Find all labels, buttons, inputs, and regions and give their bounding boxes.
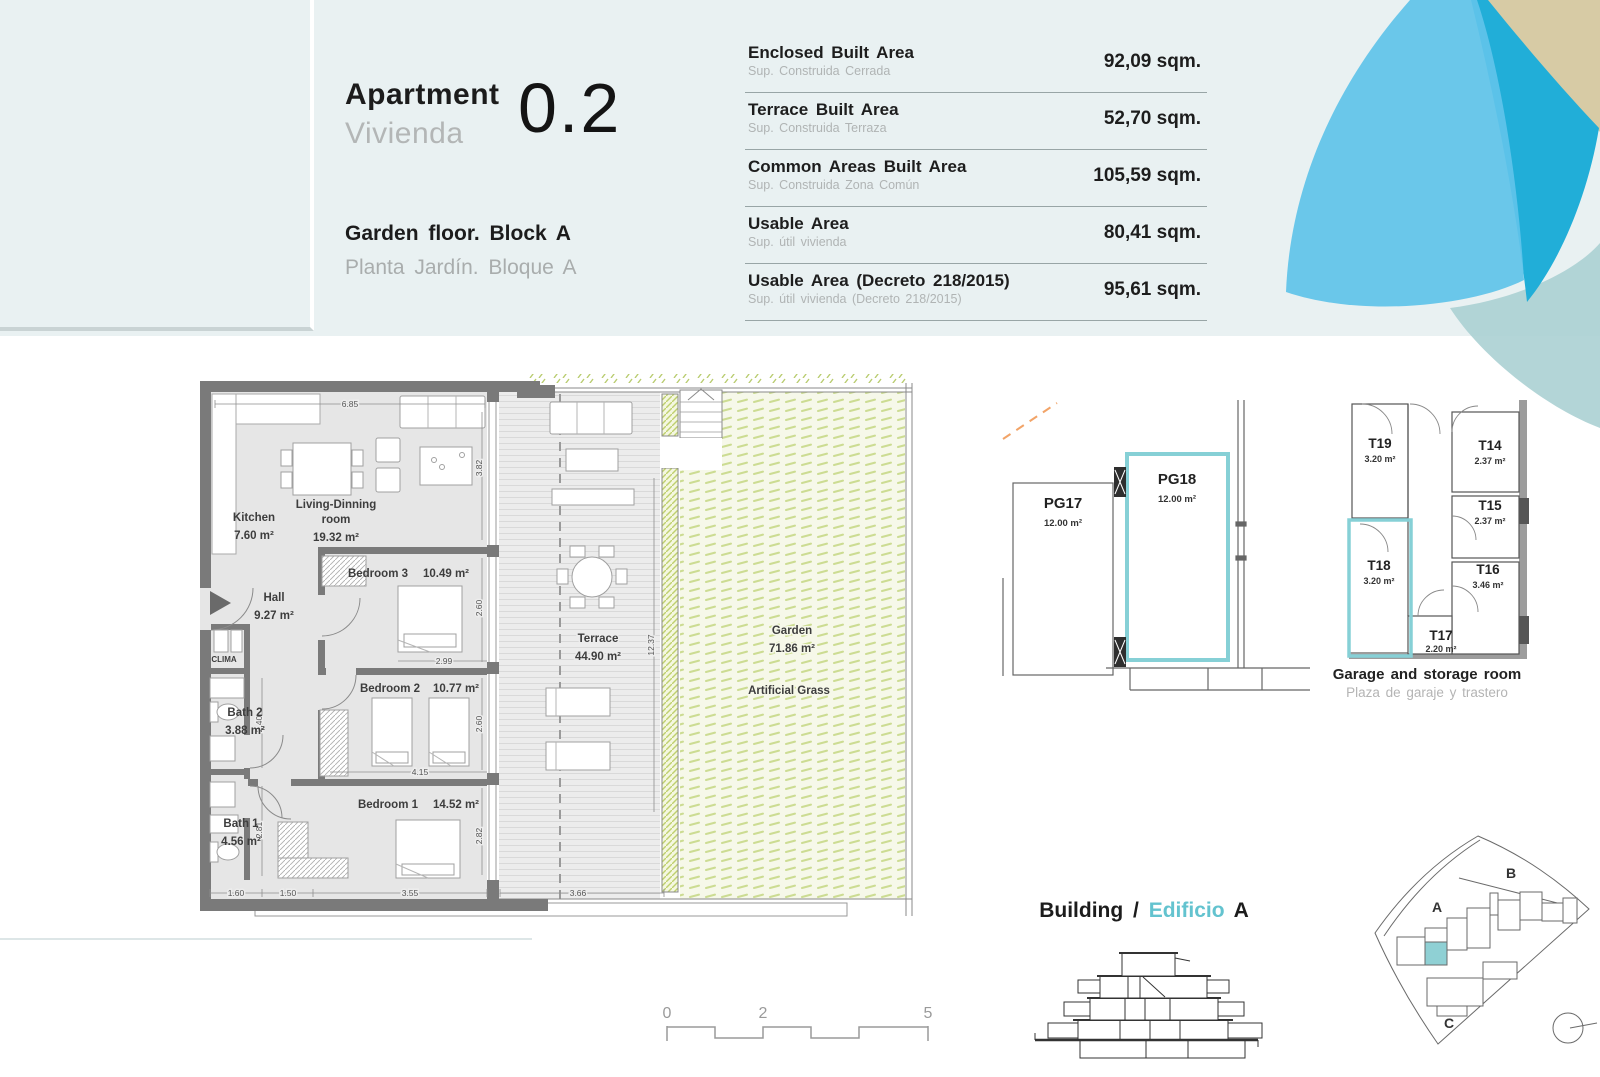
t14-label: T14 bbox=[1478, 438, 1502, 453]
row-label-es: Sup. útil vivienda bbox=[748, 235, 847, 249]
t18-area: 3.20 m² bbox=[1363, 576, 1394, 586]
bath1-label: Bath 1 bbox=[223, 818, 259, 830]
bath2-area: 3.88 m² bbox=[225, 725, 265, 737]
row-label-en: Enclosed Built Area bbox=[748, 43, 914, 63]
row-label-en: Usable Area (Decreto 218/2015) bbox=[748, 271, 1010, 291]
t18-highlight-box bbox=[1349, 520, 1411, 656]
building-label-es: Edificio bbox=[1149, 899, 1225, 922]
building-block: A bbox=[1234, 899, 1249, 922]
pg18-area: 12.00 m² bbox=[1158, 494, 1196, 505]
petal-light-blue bbox=[1286, 0, 1524, 307]
footer-divider bbox=[0, 938, 532, 940]
site-block-a-label: A bbox=[1432, 899, 1442, 915]
t17-label: T17 bbox=[1429, 628, 1452, 643]
scale-tick-0: 0 bbox=[663, 1005, 672, 1022]
pg18-label: PG18 bbox=[1158, 471, 1196, 488]
floor-label-es: Planta Jardín. Bloque A bbox=[345, 256, 577, 280]
building-elevation bbox=[1015, 940, 1270, 1075]
artificial-grass-label: Artificial Grass bbox=[748, 685, 830, 697]
t18-label: T18 bbox=[1367, 558, 1391, 573]
floor-label-en: Garden floor. Block A bbox=[345, 222, 571, 246]
garden-label: Garden bbox=[772, 625, 812, 637]
dim-bed2-h: 2.60 bbox=[474, 715, 484, 732]
site-plan: A B C bbox=[1345, 815, 1600, 1070]
scale-tick-2: 2 bbox=[759, 1005, 768, 1022]
t19-label: T19 bbox=[1368, 436, 1391, 451]
dim-bed1-w: 3.55 bbox=[402, 888, 419, 898]
apartment-label-en: Apartment bbox=[345, 78, 500, 112]
table-row: Enclosed Built Area Sup. Construida Cerr… bbox=[745, 36, 1207, 93]
row-label-en: Common Areas Built Area bbox=[748, 157, 966, 177]
dim-terrace-h: 12.37 bbox=[646, 634, 656, 656]
bedroom1-label: Bedroom 1 bbox=[358, 799, 419, 811]
photo-placeholder bbox=[0, 0, 314, 331]
dim-terrace-w: 3.66 bbox=[570, 888, 587, 898]
scale-bar-line bbox=[667, 1026, 928, 1041]
dim-bed2-w: 4.15 bbox=[412, 767, 429, 777]
dim-bottom2: 1.50 bbox=[280, 888, 297, 898]
pg17-label: PG17 bbox=[1044, 495, 1082, 512]
elevation-drawing bbox=[1035, 953, 1262, 1058]
logo-petals-decoration bbox=[1180, 0, 1600, 430]
row-label-en: Usable Area bbox=[748, 214, 849, 234]
kitchen-area: 7.60 m² bbox=[234, 530, 274, 542]
building-label: Building / Edificio A bbox=[1024, 899, 1264, 923]
garden-area: 71.86 m² bbox=[769, 643, 815, 655]
brochure-page: Apartment Vivienda 0.2 Garden floor. Blo… bbox=[0, 0, 1600, 1077]
table-row: Common Areas Built Area Sup. Construida … bbox=[745, 150, 1207, 207]
garage-caption: Garage and storage room Plaza de garaje … bbox=[1318, 666, 1536, 700]
terrace-label: Terrace bbox=[578, 633, 619, 645]
site-block-c-label: C bbox=[1444, 1015, 1454, 1031]
t15-label: T15 bbox=[1478, 498, 1502, 513]
row-label-es: Sup. útil vivienda (Decreto 218/2015) bbox=[748, 292, 962, 306]
dim-living-h: 3.82 bbox=[474, 459, 484, 476]
garage-caption-en: Garage and storage room bbox=[1318, 666, 1536, 683]
row-value: 105,59 sqm. bbox=[1093, 165, 1201, 187]
site-buildings bbox=[1397, 892, 1577, 1016]
bedroom3-label: Bedroom 3 bbox=[348, 568, 408, 580]
bedroom3-area: 10.49 m² bbox=[423, 568, 469, 580]
row-label-es: Sup. Construida Terraza bbox=[748, 121, 887, 135]
row-value: 92,09 sqm. bbox=[1104, 51, 1201, 73]
bath2-label: Bath 2 bbox=[227, 707, 262, 719]
t16-area: 3.46 m² bbox=[1472, 580, 1503, 590]
apartment-label-es: Vivienda bbox=[345, 117, 464, 151]
orange-dashed-line bbox=[1003, 403, 1057, 439]
t16-label: T16 bbox=[1476, 562, 1500, 577]
terrace-area: 44.90 m² bbox=[575, 651, 621, 663]
living-area: 19.32 m² bbox=[313, 532, 359, 544]
hall-label: Hall bbox=[263, 592, 284, 604]
dim-bottom1: 1.60 bbox=[228, 888, 245, 898]
bath1-area: 4.56 m² bbox=[221, 836, 261, 848]
living-label2: room bbox=[322, 514, 351, 526]
area-table: Enclosed Built Area Sup. Construida Cerr… bbox=[745, 36, 1207, 321]
row-value: 52,70 sqm. bbox=[1104, 108, 1201, 130]
garage-columns bbox=[1114, 467, 1126, 667]
t15-area: 2.37 m² bbox=[1474, 516, 1505, 526]
compass-icon bbox=[1553, 1013, 1597, 1043]
dim-top: 6.85 bbox=[342, 399, 359, 409]
apartment-floorplan: 6.85 3.82 2.60 2.99 2.60 4.15 2.82 3.55 … bbox=[180, 365, 940, 930]
site-highlighted-unit bbox=[1425, 942, 1447, 965]
dim-bed3-h: 2.60 bbox=[474, 599, 484, 616]
building-label-en: Building bbox=[1039, 899, 1123, 922]
row-value: 95,61 sqm. bbox=[1104, 279, 1201, 301]
storage-plan: T19 3.20 m² T14 2.37 m² T15 2.37 m² T16 … bbox=[1320, 385, 1535, 675]
garage-plan: PG17 12.00 m² PG18 12.00 m² bbox=[960, 375, 1310, 695]
kitchen-label: Kitchen bbox=[233, 512, 275, 524]
bedroom2-area: 10.77 m² bbox=[433, 683, 479, 695]
building-label-separator: / bbox=[1133, 899, 1139, 922]
row-label-es: Sup. Construida Cerrada bbox=[748, 64, 890, 78]
living-label: Living-Dinning bbox=[296, 499, 376, 511]
row-label-en: Terrace Built Area bbox=[748, 100, 899, 120]
row-value: 80,41 sqm. bbox=[1104, 222, 1201, 244]
clima-label: CLIMA bbox=[211, 655, 237, 664]
scale-bar: 0 2 5 bbox=[650, 995, 940, 1050]
dim-bed3-w: 2.99 bbox=[436, 656, 453, 666]
table-row: Terrace Built Area Sup. Construida Terra… bbox=[745, 93, 1207, 150]
t14-area: 2.37 m² bbox=[1474, 456, 1505, 466]
row-label-es: Sup. Construida Zona Común bbox=[748, 178, 919, 192]
bedroom2-label: Bedroom 2 bbox=[360, 683, 420, 695]
dim-bed1-h: 2.82 bbox=[474, 827, 484, 844]
table-row: Usable Area Sup. útil vivienda 80,41 sqm… bbox=[745, 207, 1207, 264]
hall-area: 9.27 m² bbox=[254, 610, 294, 622]
bedroom1-area: 14.52 m² bbox=[433, 799, 479, 811]
pg17-area: 12.00 m² bbox=[1044, 518, 1082, 529]
scale-tick-5: 5 bbox=[924, 1005, 933, 1022]
t19-area: 3.20 m² bbox=[1364, 454, 1395, 464]
table-row: Usable Area (Decreto 218/2015) Sup. útil… bbox=[745, 264, 1207, 321]
unit-number: 0.2 bbox=[518, 68, 621, 148]
t17-area: 2.20 m² bbox=[1425, 644, 1456, 654]
site-block-b-label: B bbox=[1506, 865, 1516, 881]
garage-caption-es: Plaza de garaje y trastero bbox=[1318, 685, 1536, 700]
